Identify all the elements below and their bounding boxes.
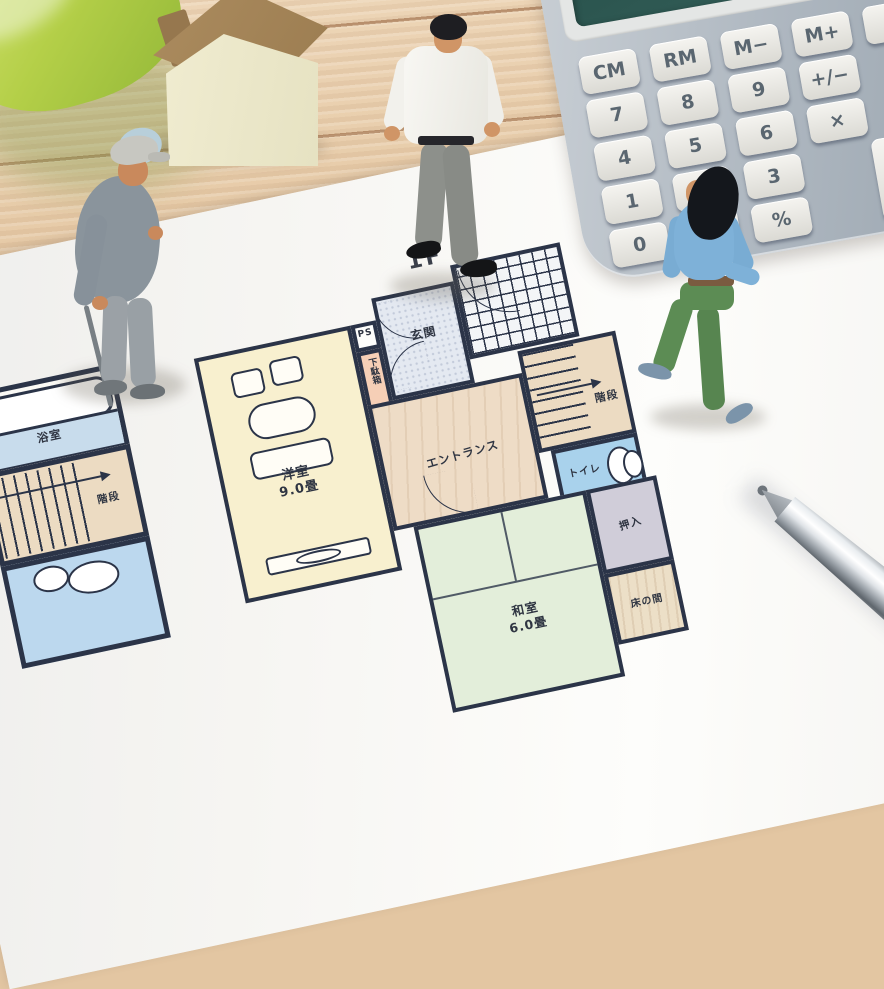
wash-basin-2 [31,562,72,595]
old-man-leg-left [100,296,128,385]
room-tokonoma: 床の間 [604,559,689,644]
woman-leg-right [696,305,725,410]
armchair-2 [268,355,305,387]
stair-treads [0,461,96,558]
man-hand-right [484,122,500,137]
figurine-elderly-man [56,118,196,413]
tatami-line [500,512,517,581]
door-arc [382,341,433,392]
figurine-woman [636,166,791,436]
room-closet-label: 押入 [601,509,660,539]
man-belt [418,136,474,145]
man-hand-left [384,126,400,141]
armchair-1 [230,367,267,399]
old-man-hand-right [148,226,163,240]
sideboard [265,536,372,576]
leaf-highlight [0,0,84,57]
room-stairs-left-label: 階段 [81,487,137,511]
room-toilet-label: トイレ [561,461,609,483]
room-shoe-cabinet-label: 下駄箱 [365,357,382,386]
old-man-leg-right [127,297,157,388]
door-arc [423,466,479,522]
old-man-cap [108,132,160,168]
room-tokonoma-label: 床の間 [616,590,679,615]
old-man-cap-brim [148,152,170,162]
wash-basin-1 [65,556,123,598]
old-man-hand-cane [92,296,108,310]
man-shoe-left [405,239,443,262]
woman-hips [680,282,734,310]
room-japanese-label: 和室 6.0畳 [475,591,579,642]
man-hair [430,14,467,40]
man-leg-right [442,143,480,267]
man-shirt [404,46,488,144]
coffee-table [245,393,319,442]
room-ps-label: PS [355,327,375,342]
figurine-man [368,14,518,309]
